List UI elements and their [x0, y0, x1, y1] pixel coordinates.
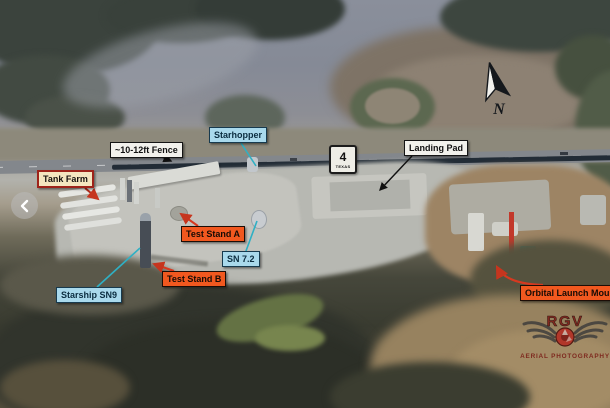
north-arrow-icon: N [474, 60, 518, 118]
label-starship-sn9: Starship SN9 [56, 287, 122, 303]
chevron-left-icon [18, 199, 32, 213]
previous-image-button[interactable] [11, 192, 38, 219]
label-fence: ~10-12ft Fence [110, 142, 183, 158]
label-orbital-launch-mount: Orbital Launch Mount [520, 285, 610, 301]
label-tank-farm: Tank Farm [37, 170, 94, 188]
highway-region: TEXAS [336, 164, 351, 169]
label-starhopper: Starhopper [209, 127, 267, 143]
label-sn72: SN 7.2 [222, 251, 260, 267]
watermark-subtitle: AERIAL PHOTOGRAPHY [520, 353, 610, 360]
label-landing-pad: Landing Pad [404, 140, 468, 156]
photo-viewer: ~10-12ft Fence Starhopper Tank Farm Land… [0, 0, 610, 408]
texas-highway-4-sign: 4 TEXAS [329, 145, 357, 174]
highway-number: 4 [340, 151, 347, 163]
label-test-stand-b: Test Stand B [162, 271, 226, 287]
compass-north-label: N [492, 101, 506, 118]
rgv-aerial-photography-logo: RGV AERIAL PHOTOGRAPHY [519, 311, 610, 363]
label-test-stand-a: Test Stand A [181, 226, 245, 242]
watermark-brand: RGV [546, 313, 583, 330]
